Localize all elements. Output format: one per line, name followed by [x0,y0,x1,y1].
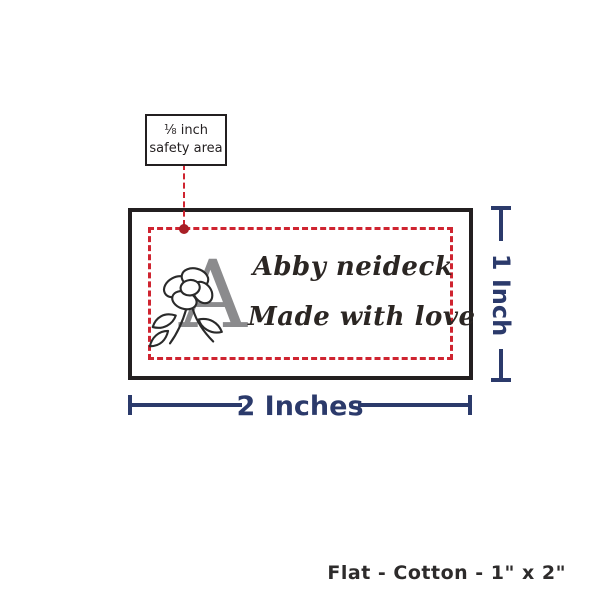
width-dimension-cap-left [128,395,132,415]
width-dimension-cap-right [468,395,472,415]
height-dimension-cap-top [491,206,511,210]
flower-icon [146,256,242,354]
label-text-line1: Abby neideck [248,252,458,282]
width-dimension-label: 2 Inches [242,389,358,423]
product-spec-caption: Flat - Cotton - 1" x 2" [327,562,566,584]
safety-area-callout: ⅛ inch safety area [145,114,227,166]
label-text-line2: Made with love [248,302,458,332]
callout-line2: safety area [149,140,222,158]
callout-leader-line [183,164,185,226]
label-size-diagram: ⅛ inch safety area A Abby neideck Made w… [0,0,600,600]
callout-anchor-dot [179,224,189,234]
callout-line1: ⅛ inch [164,122,208,140]
height-dimension-label: 1 Inch [483,241,519,349]
height-dimension-cap-bottom [491,378,511,382]
